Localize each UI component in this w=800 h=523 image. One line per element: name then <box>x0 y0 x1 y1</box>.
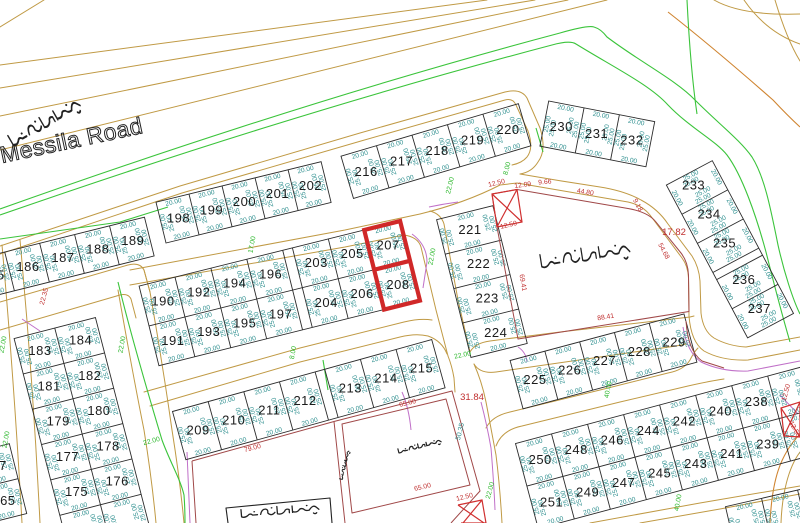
svg-text:218: 218 <box>425 143 448 158</box>
svg-text:205: 205 <box>341 246 364 261</box>
svg-text:210: 210 <box>222 413 245 428</box>
svg-text:208: 208 <box>386 277 409 292</box>
svg-text:9.66: 9.66 <box>538 178 552 186</box>
svg-text:17.82: 17.82 <box>662 227 686 238</box>
svg-text:190: 190 <box>151 293 174 308</box>
svg-text:203: 203 <box>305 255 328 270</box>
svg-text:231: 231 <box>585 126 608 141</box>
svg-text:189: 189 <box>121 233 144 248</box>
svg-text:216: 216 <box>355 164 378 179</box>
svg-text:207: 207 <box>376 237 399 252</box>
svg-text:180: 180 <box>87 403 110 418</box>
svg-text:247: 247 <box>612 475 635 490</box>
svg-text:194: 194 <box>223 275 246 290</box>
svg-text:188: 188 <box>86 242 109 257</box>
svg-text:177: 177 <box>56 449 79 464</box>
svg-text:209: 209 <box>186 423 209 438</box>
svg-text:251: 251 <box>540 494 563 509</box>
svg-text:235: 235 <box>713 236 736 251</box>
svg-text:213: 213 <box>339 380 362 395</box>
svg-text:199: 199 <box>200 202 223 217</box>
svg-text:214: 214 <box>374 370 397 385</box>
svg-text:243: 243 <box>684 456 707 471</box>
svg-text:222: 222 <box>467 256 490 271</box>
svg-text:232: 232 <box>620 133 643 148</box>
svg-text:198: 198 <box>167 210 190 225</box>
svg-text:176: 176 <box>106 474 129 489</box>
svg-text:211: 211 <box>258 403 280 418</box>
svg-text:230: 230 <box>550 119 573 134</box>
svg-text:204: 204 <box>315 295 338 310</box>
svg-text:31.84: 31.84 <box>460 392 484 403</box>
svg-text:228: 228 <box>628 344 651 359</box>
svg-text:187: 187 <box>51 250 74 265</box>
svg-text:212: 212 <box>293 393 316 408</box>
svg-text:221: 221 <box>458 222 481 237</box>
svg-text:185: 185 <box>0 268 5 283</box>
svg-text:248: 248 <box>565 442 588 457</box>
svg-text:245: 245 <box>648 465 671 480</box>
svg-text:206: 206 <box>351 286 374 301</box>
svg-text:225: 225 <box>523 372 546 387</box>
svg-text:193: 193 <box>197 324 220 339</box>
svg-text:196: 196 <box>259 267 282 282</box>
svg-text:234: 234 <box>697 206 720 221</box>
svg-text:226: 226 <box>558 363 581 378</box>
svg-text:192: 192 <box>187 284 210 299</box>
svg-text:237: 237 <box>748 301 771 316</box>
svg-text:242: 242 <box>673 413 696 428</box>
svg-text:250: 250 <box>529 452 552 467</box>
svg-text:239: 239 <box>756 436 779 451</box>
svg-text:167: 167 <box>0 458 7 473</box>
svg-text:217: 217 <box>390 153 413 168</box>
svg-text:183: 183 <box>28 343 51 358</box>
svg-text:244: 244 <box>637 423 660 438</box>
svg-text:233: 233 <box>682 177 705 192</box>
svg-text:182: 182 <box>78 368 101 383</box>
svg-text:215: 215 <box>410 361 433 376</box>
svg-text:229: 229 <box>662 335 685 350</box>
svg-text:165: 165 <box>0 493 16 508</box>
svg-text:238: 238 <box>745 394 768 409</box>
svg-text:179: 179 <box>47 414 70 429</box>
svg-text:240: 240 <box>709 404 732 419</box>
svg-text:191: 191 <box>161 333 184 348</box>
svg-text:197: 197 <box>269 306 292 321</box>
svg-text:202: 202 <box>299 178 322 193</box>
svg-text:186: 186 <box>16 259 39 274</box>
svg-text:181: 181 <box>38 378 61 393</box>
svg-text:246: 246 <box>601 433 624 448</box>
svg-text:175: 175 <box>65 484 88 499</box>
svg-text:236: 236 <box>732 272 755 287</box>
svg-text:249: 249 <box>576 485 599 500</box>
svg-text:224: 224 <box>484 325 507 340</box>
svg-text:195: 195 <box>233 315 256 330</box>
svg-text:227: 227 <box>593 353 616 368</box>
svg-text:201: 201 <box>266 186 289 201</box>
svg-text:200: 200 <box>233 194 256 209</box>
svg-text:178: 178 <box>96 438 119 453</box>
svg-text:184: 184 <box>69 332 92 347</box>
svg-text:220: 220 <box>496 122 519 137</box>
svg-text:223: 223 <box>476 291 499 306</box>
svg-text:219: 219 <box>461 132 484 147</box>
svg-text:241: 241 <box>720 446 743 461</box>
